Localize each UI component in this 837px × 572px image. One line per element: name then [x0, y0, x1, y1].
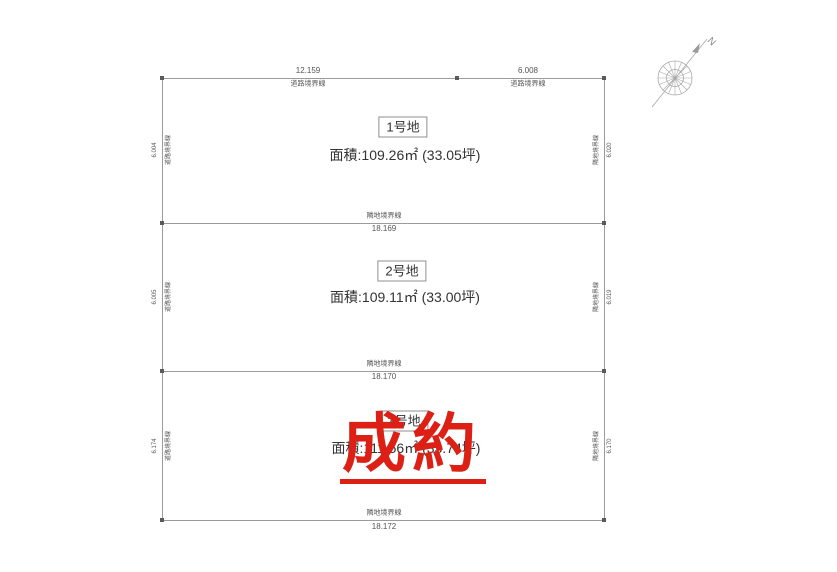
lot-1-left-boundary-label: 道路境界線	[166, 135, 172, 165]
compass-icon: N	[637, 30, 732, 125]
bottom-boundary-dimension: 18.172	[372, 523, 396, 531]
lot-1-right-dimension: 6.020	[607, 142, 613, 157]
lot-2-left-boundary-label: 道路境界線	[166, 282, 172, 312]
lot-1-left-dimension: 6.004	[152, 142, 158, 157]
north-arrow-head	[692, 43, 700, 53]
top-boundary-label-2: 道路境界線	[511, 81, 546, 88]
lot-1-area: 面積:109.26㎡ (33.05坪)	[330, 148, 481, 162]
divider-1-label: 隣地境界線	[367, 213, 402, 220]
junction-dot	[160, 221, 164, 225]
junction-dot	[602, 518, 606, 522]
boundary-line-top	[162, 78, 604, 79]
top-dimension-2: 6.008	[518, 67, 538, 75]
divider-2-label: 隣地境界線	[367, 361, 402, 368]
boundary-line-left	[162, 78, 163, 520]
bottom-boundary-label: 隣地境界線	[367, 510, 402, 517]
north-label: N	[705, 35, 718, 48]
sold-stamp: 成約	[340, 412, 486, 484]
junction-dot	[602, 369, 606, 373]
top-dimension-1: 12.159	[296, 67, 320, 75]
lot-2-area: 面積:109.11㎡ (33.00坪)	[330, 290, 480, 304]
lot-2-right-boundary-label: 隣地境界線	[594, 282, 600, 312]
junction-dot	[455, 76, 459, 80]
lot-1-right-boundary-label: 隣地境界線	[594, 135, 600, 165]
boundary-line-right	[604, 78, 605, 520]
junction-dot	[602, 76, 606, 80]
lot-2-right-dimension: 6.019	[607, 289, 613, 304]
boundary-line-bottom	[162, 520, 604, 521]
site-plan: 12.159 道路境界線 6.008 道路境界線 隣地境界線 18.169 隣地…	[0, 0, 837, 572]
lot-2-name: 2号地	[377, 261, 426, 282]
lot-3-left-dimension: 6.174	[152, 438, 158, 453]
lot-3-right-boundary-label: 隣地境界線	[594, 431, 600, 461]
lot-1-name: 1号地	[378, 117, 427, 138]
lot-3-left-boundary-label: 道路境界線	[166, 431, 172, 461]
junction-dot	[160, 518, 164, 522]
lot-3-right-dimension: 6.170	[607, 438, 613, 453]
junction-dot	[160, 76, 164, 80]
lot-2-left-dimension: 6.005	[152, 289, 158, 304]
top-boundary-label-1: 道路境界線	[291, 81, 326, 88]
divider-1-dimension: 18.169	[372, 225, 396, 233]
junction-dot	[602, 221, 606, 225]
divider-2-dimension: 18.170	[372, 373, 396, 381]
junction-dot	[160, 369, 164, 373]
